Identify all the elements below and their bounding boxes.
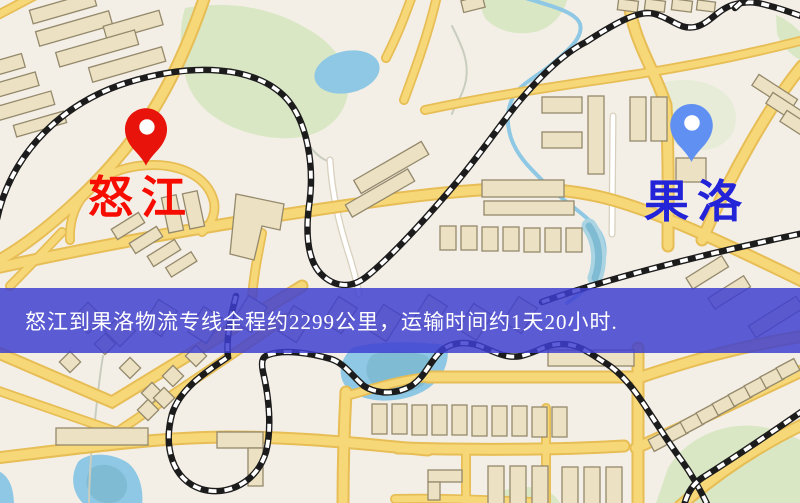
map-pin-icon [124,104,168,170]
map-pin-icon [668,103,715,163]
base-map [0,0,800,503]
map-canvas[interactable]: 怒江 果洛 怒江到果洛物流专线全程约2299公里，运输时间约1天20小时. [0,0,800,503]
destination-pin[interactable] [668,103,715,163]
origin-pin[interactable] [124,104,168,170]
route-info-banner: 怒江到果洛物流专线全程约2299公里，运输时间约1天20小时. [0,288,800,353]
buildings [0,0,800,503]
route-info-text: 怒江到果洛物流专线全程约2299公里，运输时间约1天20小时. [25,306,618,336]
destination-label: 果洛 [644,180,750,225]
origin-label: 怒江 [88,176,194,221]
